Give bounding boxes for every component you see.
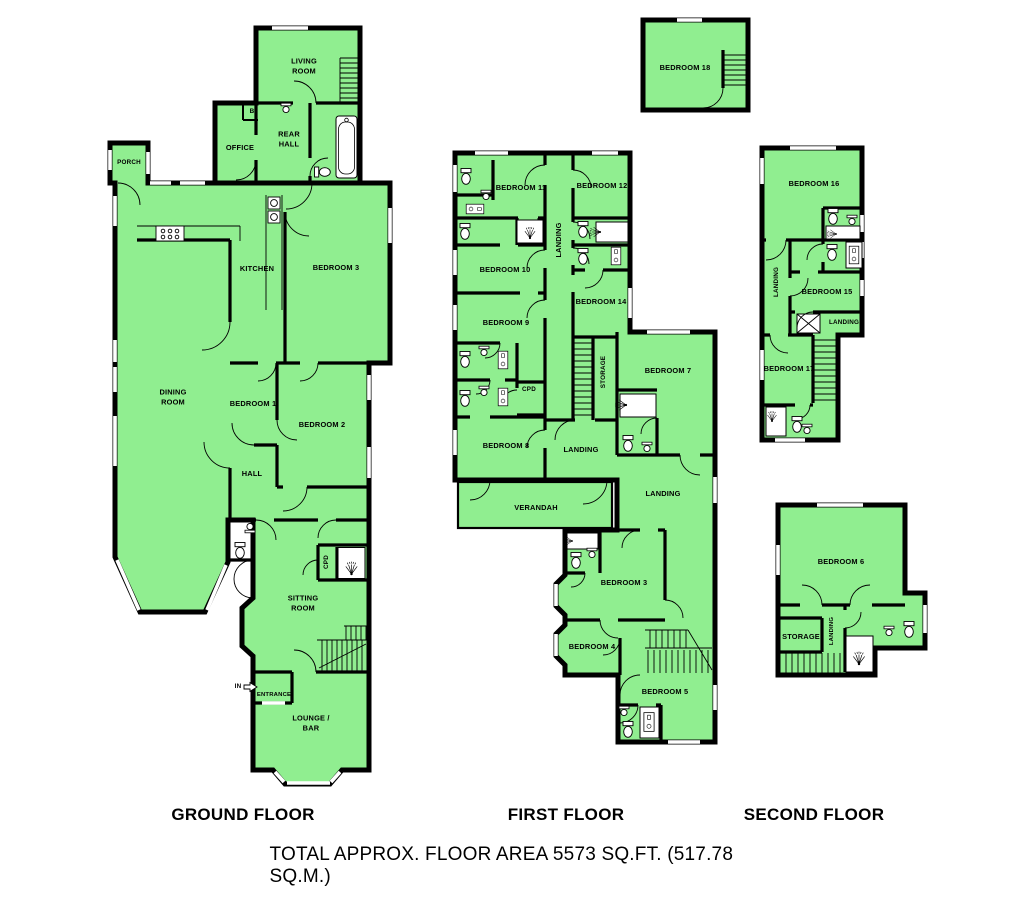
floorplan-drawing [0, 0, 1024, 911]
floorplan-page: LIVING ROOM B OFFICE REAR HALL PORCH KIT… [0, 0, 1024, 911]
ground-bathtub-icon [336, 116, 357, 178]
ground-floor-plan [110, 28, 390, 784]
second-landing-hatch-icon [797, 314, 820, 333]
second-floor-title: SECOND FLOOR [744, 805, 885, 825]
first-outline [455, 153, 715, 742]
total-floor-area-text: TOTAL APPROX. FLOOR AREA 5573 SQ.FT. (51… [270, 844, 773, 888]
first-floor-plan [455, 20, 748, 742]
second-floor-plan [762, 148, 925, 675]
ground-floor-title: GROUND FLOOR [171, 805, 314, 825]
first-floor-title: FIRST FLOOR [508, 805, 625, 825]
ground-shower-icon [338, 548, 365, 579]
first-verandah-outline [458, 482, 612, 528]
